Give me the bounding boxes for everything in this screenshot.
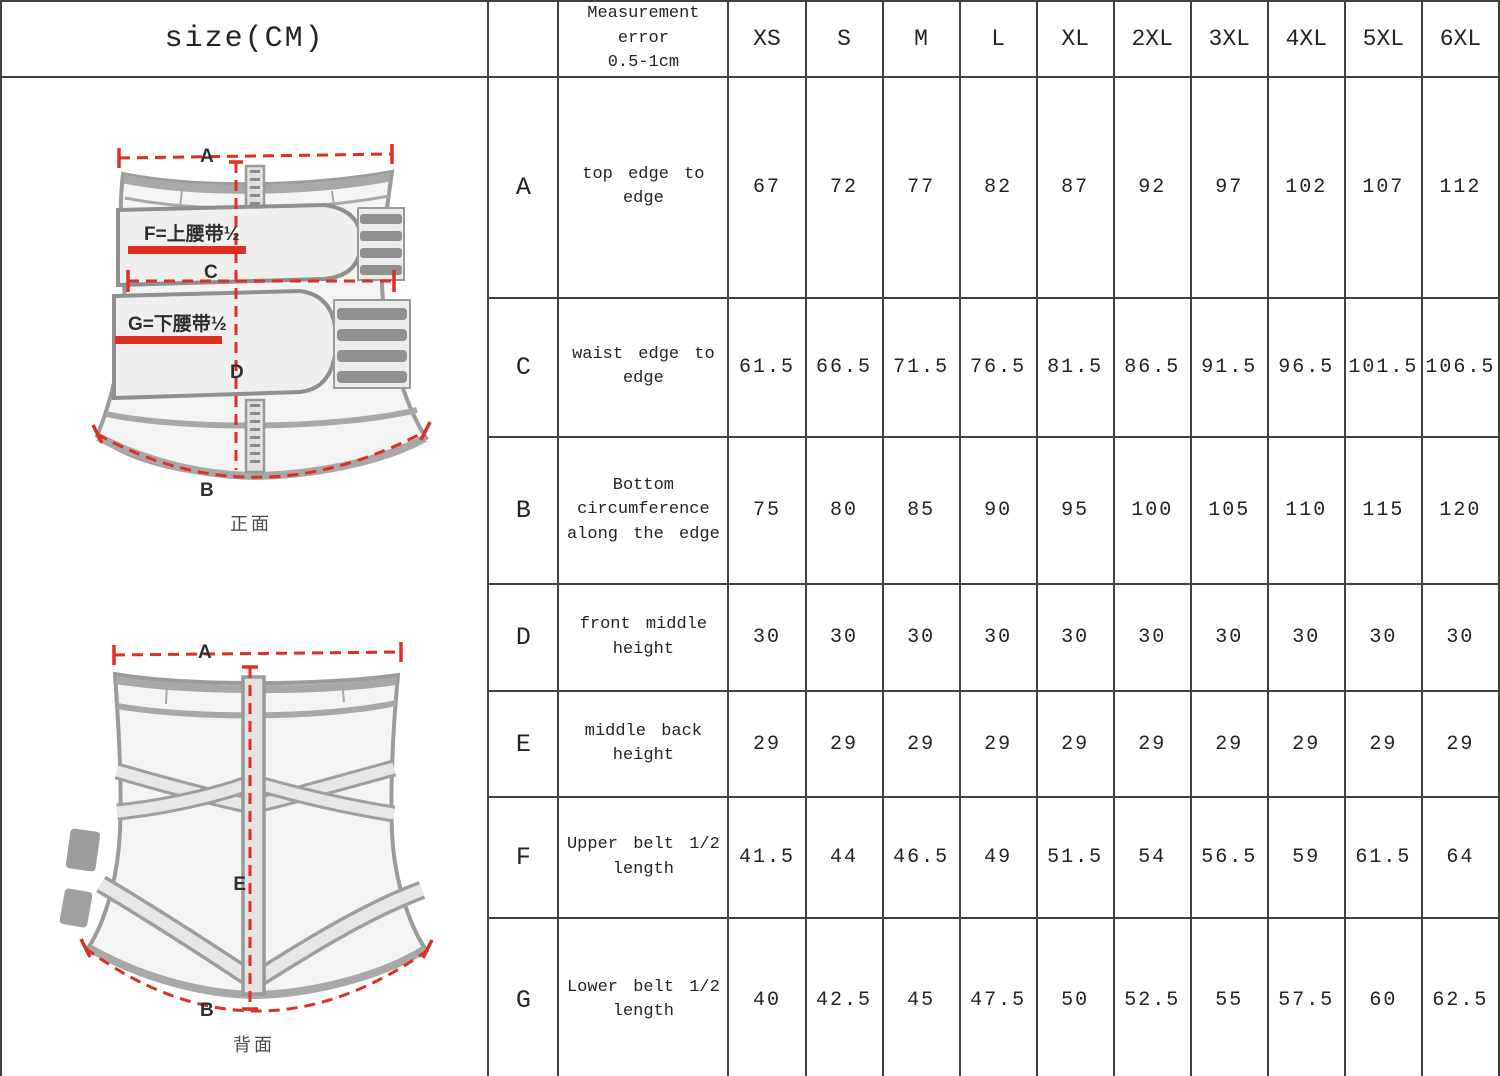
measure-value-cell: 51.5 [1037,797,1114,918]
measure-value-cell: 45 [883,918,960,1076]
measure-value-cell: 107 [1345,77,1422,298]
measure-value-cell: 29 [1422,691,1499,798]
size-chart-sheet: size(CM) Measurement error 0.5-1cm XS S … [0,0,1500,1076]
measure-value-cell: 29 [883,691,960,798]
measure-value-cell: 91.5 [1191,298,1268,437]
measure-desc-cell: Lower belt 1/2 length [558,918,728,1076]
measure-value-cell: 97 [1191,77,1268,298]
measure-value-cell: 95 [1037,437,1114,585]
measure-value-cell: 30 [1268,584,1345,691]
measure-value-cell: 56.5 [1191,797,1268,918]
measure-value-cell: 30 [960,584,1037,691]
measure-value-cell: 30 [806,584,883,691]
measure-value-cell: 59 [1268,797,1345,918]
measure-value-cell: 96.5 [1268,298,1345,437]
back-label-e: E [233,874,246,895]
size-header-5xl: 5XL [1345,1,1422,77]
measure-code-cell: E [488,691,558,798]
measure-value-cell: 55 [1191,918,1268,1076]
table-title: size(CM) [1,1,488,77]
measure-value-cell: 112 [1422,77,1499,298]
measure-code-cell: G [488,918,558,1076]
measure-desc-cell: top edge to edge [558,77,728,298]
size-header-m: M [883,1,960,77]
measure-value-cell: 106.5 [1422,298,1499,437]
measure-value-cell: 49 [960,797,1037,918]
corner-cell [488,1,558,77]
measure-desc-cell: waist edge to edge [558,298,728,437]
front-label-b: B [200,480,214,501]
measure-value-cell: 71.5 [883,298,960,437]
front-label-c: C [204,262,218,283]
measure-value-cell: 110 [1268,437,1345,585]
measure-value-cell: 80 [806,437,883,585]
front-label-a: A [200,146,214,167]
measure-desc-cell: Bottom circumference along the edge [558,437,728,585]
measure-value-cell: 66.5 [806,298,883,437]
measure-value-cell: 52.5 [1114,918,1191,1076]
measure-value-cell: 62.5 [1422,918,1499,1076]
measure-value-cell: 30 [1037,584,1114,691]
measure-value-cell: 40 [728,918,805,1076]
back-corset-sketch [59,674,426,995]
size-header-xl: XL [1037,1,1114,77]
measure-value-cell: 77 [883,77,960,298]
measure-line-a-back [114,652,401,655]
measure-value-cell: 44 [806,797,883,918]
measure-value-cell: 29 [1268,691,1345,798]
measure-value-cell: 61.5 [1345,797,1422,918]
size-chart-table: size(CM) Measurement error 0.5-1cm XS S … [0,0,1500,1076]
size-header-s: S [806,1,883,77]
upper-belt-underline [128,246,246,254]
measure-value-cell: 30 [1191,584,1268,691]
garment-diagram-cell: A F=上腰带½ C G=下腰带½ D B 正 [1,77,488,1076]
measure-value-cell: 29 [1114,691,1191,798]
measure-value-cell: 29 [1037,691,1114,798]
back-caption: 背面 [233,1035,275,1055]
measure-value-cell: 30 [728,584,805,691]
measure-value-cell: 76.5 [960,298,1037,437]
measure-value-cell: 85 [883,437,960,585]
size-header-xs: XS [728,1,805,77]
measure-value-cell: 60 [1345,918,1422,1076]
measure-value-cell: 47.5 [960,918,1037,1076]
size-header-4xl: 4XL [1268,1,1345,77]
front-caption: 正面 [230,514,272,534]
size-header-6xl: 6XL [1422,1,1499,77]
measure-value-cell: 81.5 [1037,298,1114,437]
measure-code-cell: B [488,437,558,585]
measure-value-cell: 92 [1114,77,1191,298]
measure-value-cell: 57.5 [1268,918,1345,1076]
measure-value-cell: 29 [960,691,1037,798]
measure-value-cell: 41.5 [728,797,805,918]
measure-value-cell: 30 [1345,584,1422,691]
measure-value-cell: 29 [1191,691,1268,798]
back-label-b: B [200,1000,214,1021]
size-header-3xl: 3XL [1191,1,1268,77]
table-row: A F=上腰带½ C G=下腰带½ D B 正 [1,77,1499,298]
measure-value-cell: 102 [1268,77,1345,298]
measure-value-cell: 54 [1114,797,1191,918]
measure-value-cell: 50 [1037,918,1114,1076]
measure-value-cell: 61.5 [728,298,805,437]
header-row: size(CM) Measurement error 0.5-1cm XS S … [1,1,1499,77]
size-header-2xl: 2XL [1114,1,1191,77]
measure-value-cell: 72 [806,77,883,298]
measure-value-cell: 82 [960,77,1037,298]
size-header-l: L [960,1,1037,77]
measure-value-cell: 90 [960,437,1037,585]
measure-code-cell: D [488,584,558,691]
measure-code-cell: A [488,77,558,298]
measure-value-cell: 115 [1345,437,1422,585]
measure-code-cell: F [488,797,558,918]
back-label-a: A [198,642,212,663]
measure-line-a-front [119,154,392,158]
measure-value-cell: 100 [1114,437,1191,585]
measure-value-cell: 86.5 [1114,298,1191,437]
measure-value-cell: 120 [1422,437,1499,585]
measure-value-cell: 29 [806,691,883,798]
measure-value-cell: 30 [883,584,960,691]
upper-belt-label: F=上腰带½ [144,223,240,245]
measure-value-cell: 29 [728,691,805,798]
measurement-error-header: Measurement error 0.5-1cm [558,1,728,77]
measure-value-cell: 30 [1114,584,1191,691]
measure-value-cell: 101.5 [1345,298,1422,437]
measure-value-cell: 30 [1422,584,1499,691]
measure-value-cell: 64 [1422,797,1499,918]
measure-value-cell: 75 [728,437,805,585]
front-label-d: D [230,362,244,383]
measure-desc-cell: front middle height [558,584,728,691]
measure-desc-cell: middle back height [558,691,728,798]
measure-desc-cell: Upper belt 1/2 length [558,797,728,918]
measure-value-cell: 67 [728,77,805,298]
measure-value-cell: 87 [1037,77,1114,298]
lower-belt-underline [115,336,222,344]
measure-code-cell: C [488,298,558,437]
measure-value-cell: 42.5 [806,918,883,1076]
lower-belt-label: G=下腰带½ [128,313,227,335]
measure-value-cell: 105 [1191,437,1268,585]
measure-value-cell: 29 [1345,691,1422,798]
measure-value-cell: 46.5 [883,797,960,918]
garment-diagrams: A F=上腰带½ C G=下腰带½ D B 正 [2,78,487,1076]
